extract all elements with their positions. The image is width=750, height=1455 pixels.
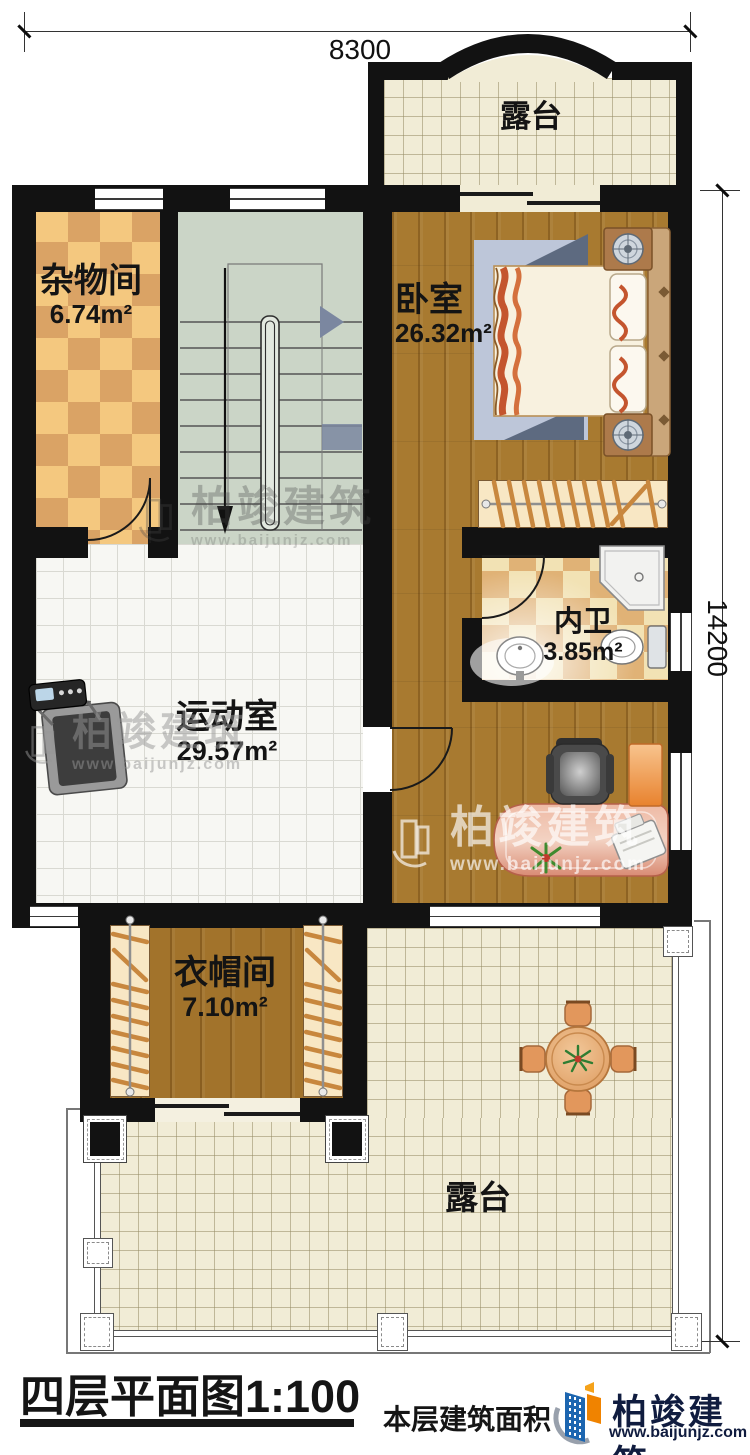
- room-label-storage: 杂物间 6.74m²: [33, 262, 149, 329]
- staircase: [180, 264, 362, 530]
- window: [430, 906, 600, 927]
- dimension-width-label: 8300: [320, 34, 400, 66]
- railing-post: [671, 1313, 702, 1351]
- room-label-terrace-bottom: 露台: [418, 1180, 538, 1217]
- brand-logo-icon: [549, 1380, 609, 1446]
- shower: [600, 546, 664, 610]
- railing-post: [663, 926, 693, 957]
- door-storage: [88, 478, 150, 543]
- wall: [600, 185, 692, 212]
- window: [230, 188, 325, 210]
- floor-plan-canvas: 露台 杂物间 6.74m² 卧室 26.32m² 内卫 3.85m² 运动室 2…: [0, 0, 750, 1455]
- railing-post: [83, 1238, 113, 1268]
- side-cabinet: [629, 744, 662, 806]
- sliding-door-cloakroom-terrace: [155, 1098, 300, 1122]
- brand-website: www.baijunjz.com: [609, 1424, 747, 1442]
- railing-post: [377, 1313, 408, 1351]
- window: [670, 613, 692, 671]
- terrace-column: [325, 1115, 369, 1163]
- plan-vector-overlay: [0, 0, 750, 1455]
- treadmill: [29, 676, 128, 797]
- door-gym-study: [390, 728, 452, 790]
- room-label-cloakroom: 衣帽间 7.10m²: [165, 954, 285, 1022]
- office-chair: [546, 738, 614, 804]
- stairs-down-arrow-icon: [217, 268, 233, 534]
- room-label-bedroom: 卧室 26.32m²: [395, 281, 505, 348]
- sliding-door-terrace-bedroom: [460, 185, 600, 212]
- room-label-terrace-top: 露台: [471, 100, 591, 135]
- terrace-column: [83, 1115, 127, 1163]
- railing-post: [80, 1313, 114, 1351]
- window: [30, 906, 78, 927]
- dimension-height-label: 14200: [701, 583, 733, 693]
- terrace-table-set: [521, 1002, 635, 1114]
- window: [670, 753, 692, 850]
- window: [95, 188, 163, 210]
- room-label-bathroom: 内卫 3.85m²: [527, 606, 639, 666]
- closet-hanger-rail: [482, 482, 666, 526]
- brand-company-name: 柏竣建筑: [612, 1384, 750, 1455]
- page-title: 四层平面图1:100: [20, 1360, 360, 1425]
- wall: [368, 185, 460, 212]
- room-label-gym: 运动室 29.57m²: [167, 698, 287, 766]
- terrace-arch-wall: [444, 44, 612, 83]
- floor-area-note: 本层建筑面积: [383, 1398, 551, 1438]
- title-underline: [20, 1419, 354, 1427]
